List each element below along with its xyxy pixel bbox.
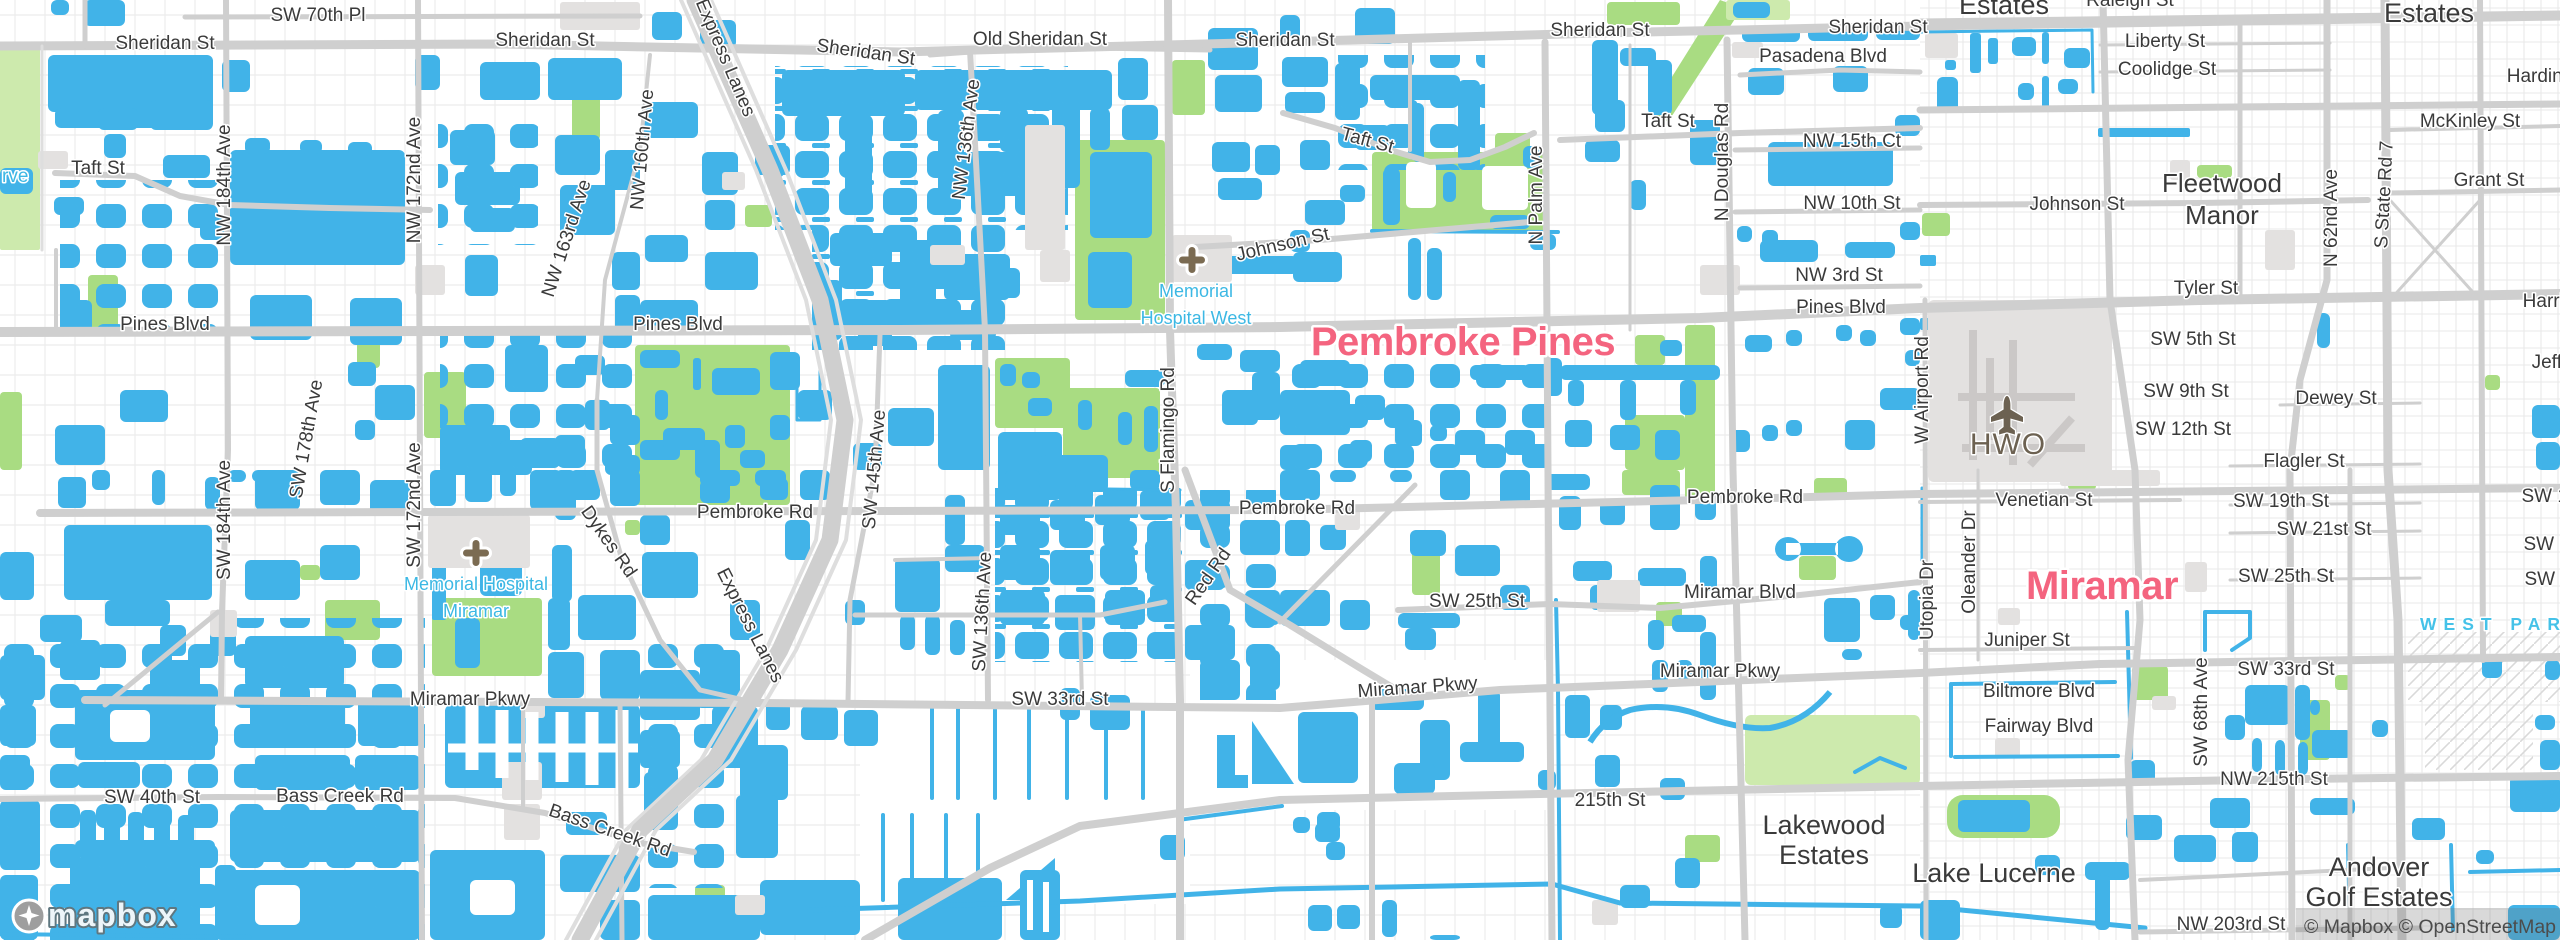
- svg-text:NW 172nd Ave: NW 172nd Ave: [404, 117, 425, 243]
- svg-text:SW 5th St: SW 5th St: [2150, 329, 2236, 350]
- svg-text:Sheridan St: Sheridan St: [1235, 30, 1335, 51]
- svg-text:Fairway Blvd: Fairway Blvd: [1985, 716, 2094, 737]
- svg-text:WEST PARK: WEST PARK: [2420, 614, 2560, 634]
- svg-text:S Flamingo Rd: S Flamingo Rd: [1158, 367, 1179, 493]
- svg-text:Sheridan St: Sheridan St: [1828, 17, 1928, 38]
- svg-text:Pines Blvd: Pines Blvd: [633, 314, 723, 335]
- svg-text:Miramar Pkwy: Miramar Pkwy: [410, 689, 531, 710]
- svg-text:NW 15th Ct: NW 15th Ct: [1803, 131, 1902, 152]
- svg-text:Oleander Dr: Oleander Dr: [1959, 510, 1980, 614]
- svg-text:Estates: Estates: [1959, 0, 2049, 20]
- svg-text:Lakewood: Lakewood: [1762, 810, 1885, 840]
- svg-text:SW 40th St: SW 40th St: [104, 787, 201, 808]
- svg-text:Estates: Estates: [1779, 840, 1869, 870]
- svg-text:Pembroke Rd: Pembroke Rd: [1239, 498, 1355, 519]
- svg-text:SW 172nd Ave: SW 172nd Ave: [404, 442, 425, 567]
- svg-text:Dewey St: Dewey St: [2295, 388, 2377, 409]
- svg-text:SW 19th St: SW 19th St: [2233, 491, 2330, 512]
- svg-text:N Palm Ave: N Palm Ave: [1526, 146, 1547, 245]
- svg-text:SW 9th St: SW 9th St: [2143, 381, 2229, 402]
- svg-text:Pembroke Pines: Pembroke Pines: [1311, 320, 1615, 364]
- svg-text:NW 10th St: NW 10th St: [1803, 193, 1901, 214]
- svg-text:SW 25th St: SW 25th St: [1429, 591, 1526, 612]
- svg-text:Fleetwood: Fleetwood: [2162, 168, 2282, 198]
- svg-text:Pasadena Blvd: Pasadena Blvd: [1759, 46, 1887, 67]
- svg-text:Coolidge St: Coolidge St: [2118, 59, 2217, 80]
- svg-text:Jeffe: Jeffe: [2532, 352, 2560, 373]
- svg-text:SW 18: SW 18: [2521, 486, 2560, 507]
- svg-text:Venetian St: Venetian St: [1995, 490, 2093, 511]
- svg-text:Lake Lucerne: Lake Lucerne: [1912, 858, 2076, 888]
- svg-text:Taft St: Taft St: [1641, 111, 1696, 132]
- svg-text:NW 3rd St: NW 3rd St: [1795, 265, 1883, 286]
- svg-text:N Douglas Rd: N Douglas Rd: [1712, 103, 1733, 221]
- svg-text:Memorial Hospital: Memorial Hospital: [404, 574, 548, 594]
- svg-text:Andover: Andover: [2329, 852, 2430, 882]
- svg-text:Harris: Harris: [2523, 291, 2560, 312]
- svg-text:SW 22: SW 22: [2523, 534, 2560, 555]
- svg-text:NW 215th St: NW 215th St: [2220, 769, 2328, 790]
- svg-text:Miramar Pkwy: Miramar Pkwy: [1660, 661, 1781, 682]
- svg-text:Pembroke Rd: Pembroke Rd: [697, 502, 813, 523]
- svg-text:Hospital West: Hospital West: [1141, 308, 1252, 328]
- svg-text:Pines Blvd: Pines Blvd: [1796, 297, 1886, 318]
- svg-text:SW 25: SW 25: [2524, 569, 2560, 590]
- svg-text:Miramar: Miramar: [443, 601, 509, 621]
- svg-text:N 62nd Ave: N 62nd Ave: [2321, 169, 2342, 267]
- svg-text:SW 12th St: SW 12th St: [2135, 419, 2232, 440]
- svg-text:NW 203rd St: NW 203rd St: [2177, 914, 2286, 935]
- svg-text:Liberty St: Liberty St: [2125, 31, 2206, 52]
- svg-text:SW 184th Ave: SW 184th Ave: [214, 460, 235, 580]
- svg-text:NW 184th Ave: NW 184th Ave: [214, 124, 235, 245]
- svg-text:Taft St: Taft St: [71, 158, 126, 179]
- svg-text:Miramar: Miramar: [2026, 564, 2178, 608]
- svg-text:SW 68th Ave: SW 68th Ave: [2191, 657, 2212, 767]
- svg-text:Estates: Estates: [2384, 0, 2474, 28]
- svg-text:Utopia Dr: Utopia Dr: [1917, 559, 1938, 640]
- svg-text:Sheridan St: Sheridan St: [115, 33, 215, 54]
- svg-text:SW 33rd St: SW 33rd St: [1011, 689, 1109, 710]
- svg-text:Memorial: Memorial: [1159, 281, 1233, 301]
- svg-text:rve: rve: [2, 166, 28, 187]
- svg-text:Grant St: Grant St: [2454, 170, 2525, 191]
- svg-text:Manor: Manor: [2185, 200, 2259, 230]
- svg-text:Sheridan St: Sheridan St: [1550, 20, 1650, 41]
- svg-text:Juniper St: Juniper St: [1984, 630, 2070, 651]
- svg-text:Sheridan St: Sheridan St: [495, 30, 595, 51]
- svg-text:Flagler St: Flagler St: [2263, 451, 2345, 472]
- svg-text:Johnson St: Johnson St: [2029, 194, 2125, 215]
- svg-text:Bass Creek Rd: Bass Creek Rd: [276, 786, 404, 807]
- svg-text:Pembroke Rd: Pembroke Rd: [1687, 487, 1803, 508]
- svg-text:Harding: Harding: [2507, 66, 2560, 87]
- svg-text:Raleigh St: Raleigh St: [2086, 0, 2174, 11]
- svg-text:SW 21st St: SW 21st St: [2276, 519, 2372, 540]
- svg-text:Tyler St: Tyler St: [2174, 278, 2239, 299]
- svg-text:Pines Blvd: Pines Blvd: [120, 314, 210, 335]
- svg-text:SW 33rd St: SW 33rd St: [2237, 659, 2335, 680]
- svg-text:© Mapbox © OpenStreetMap: © Mapbox © OpenStreetMap: [2304, 916, 2556, 938]
- svg-text:W Airport Rd: W Airport Rd: [1912, 336, 1933, 444]
- svg-text:McKinley St: McKinley St: [2420, 111, 2521, 132]
- svg-text:215th St: 215th St: [1575, 790, 1646, 811]
- svg-text:Golf Estates: Golf Estates: [2305, 882, 2452, 912]
- svg-text:Old Sheridan St: Old Sheridan St: [973, 29, 1108, 50]
- svg-text:SW 25th St: SW 25th St: [2238, 566, 2335, 587]
- svg-text:Miramar Blvd: Miramar Blvd: [1684, 582, 1796, 603]
- svg-text:Biltmore Blvd: Biltmore Blvd: [1983, 681, 2095, 702]
- svg-text:mapbox: mapbox: [48, 897, 177, 933]
- svg-text:SW 70th Pl: SW 70th Pl: [270, 5, 365, 26]
